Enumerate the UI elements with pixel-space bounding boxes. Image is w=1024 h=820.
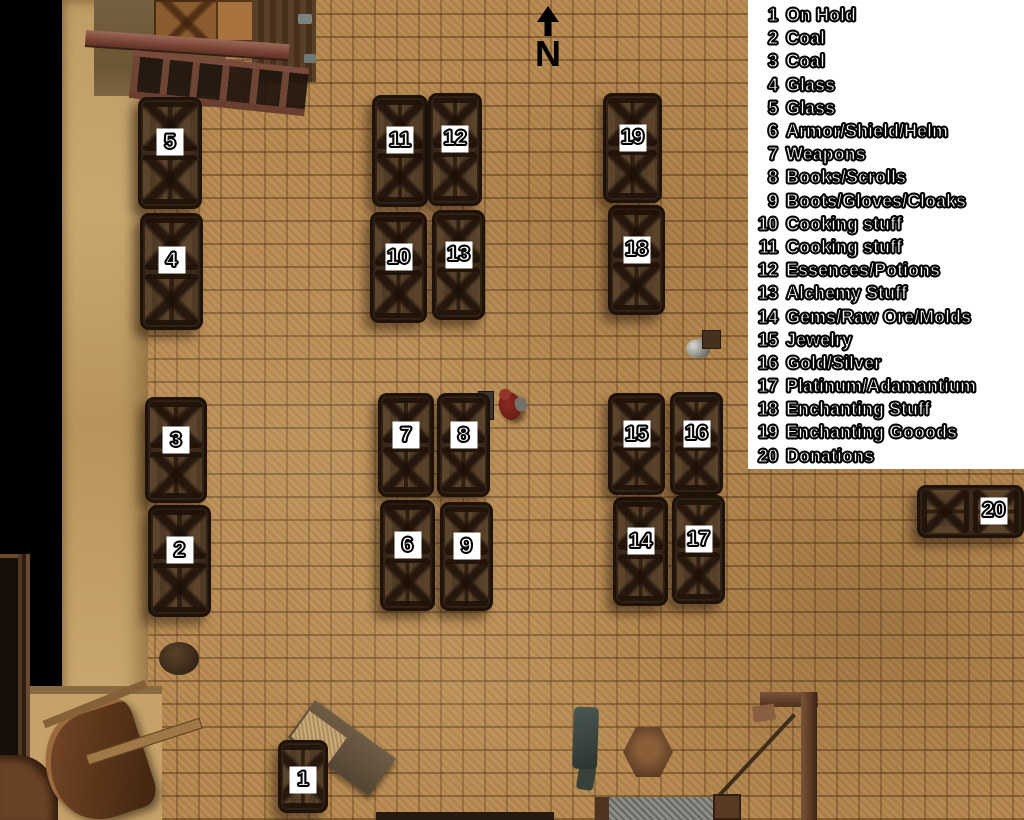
legend-item-label: Cooking stuff bbox=[786, 214, 902, 235]
north-arrow-icon bbox=[535, 6, 561, 36]
chest-number-label: 4 bbox=[158, 247, 185, 274]
chest-number-label: 10 bbox=[385, 244, 412, 271]
chest-number-label: 16 bbox=[683, 420, 710, 447]
chest-number-label: 12 bbox=[442, 125, 469, 152]
legend-row: 13Alchemy Stuff bbox=[748, 282, 1024, 305]
chest-5[interactable]: 5 bbox=[138, 97, 202, 209]
chest-3[interactable]: 3 bbox=[145, 397, 207, 503]
chest-number-label: 14 bbox=[627, 528, 654, 555]
chest-panel bbox=[613, 446, 660, 490]
legend-row: 12Essences/Potions bbox=[748, 259, 1024, 282]
legend-row: 5Glass bbox=[748, 97, 1024, 120]
legend-item-number: 6 bbox=[748, 121, 778, 142]
legend-item-label: Donations bbox=[786, 446, 874, 467]
legend-item-number: 4 bbox=[748, 75, 778, 96]
chest-number-label: 18 bbox=[623, 236, 650, 263]
legend-item-label: Gold/Silver bbox=[786, 353, 881, 374]
chest-1[interactable]: 1 bbox=[278, 740, 328, 813]
balcony-stone bbox=[304, 54, 316, 63]
crane-bracket bbox=[752, 704, 776, 723]
legend-row: 10Cooking stuff bbox=[748, 213, 1024, 236]
chest-panel bbox=[153, 563, 206, 612]
legend-row: 7Weapons bbox=[748, 143, 1024, 166]
chest-18[interactable]: 18 bbox=[608, 205, 665, 315]
chest-number-label: 6 bbox=[394, 532, 421, 559]
plaster-wall bbox=[62, 0, 148, 706]
legend-item-number: 12 bbox=[748, 260, 778, 281]
chest-number-label: 7 bbox=[393, 422, 420, 449]
legend-row: 14Gems/Raw Ore/Molds bbox=[748, 305, 1024, 328]
chest-number-label: 8 bbox=[450, 422, 477, 449]
legend-item-label: Books/Scrolls bbox=[786, 167, 906, 188]
rock-prop bbox=[159, 642, 199, 675]
chest-panel bbox=[433, 152, 477, 202]
chest-number-label: 13 bbox=[445, 241, 472, 268]
legend-item-label: Glass bbox=[786, 98, 835, 119]
chest-number-label: 15 bbox=[623, 421, 650, 448]
legend-item-label: Enchanting Gooods bbox=[786, 422, 957, 443]
chest-13[interactable]: 13 bbox=[432, 210, 485, 320]
legend-item-number: 9 bbox=[748, 191, 778, 212]
chest-10[interactable]: 10 bbox=[370, 212, 427, 323]
chest-11[interactable]: 11 bbox=[372, 95, 428, 207]
legend-row: 6Armor/Shield/Helm bbox=[748, 120, 1024, 143]
legend-row: 1On Hold bbox=[748, 4, 1024, 27]
legend-item-number: 20 bbox=[748, 446, 778, 467]
legend-row: 18Enchanting Stuff bbox=[748, 398, 1024, 421]
legend-row: 8Books/Scrolls bbox=[748, 166, 1024, 189]
legend-item-label: Gems/Raw Ore/Molds bbox=[786, 307, 971, 328]
legend-item-number: 14 bbox=[748, 307, 778, 328]
chest-20[interactable]: 20 bbox=[917, 485, 1024, 538]
legend-item-label: Coal bbox=[786, 28, 825, 49]
legend-item-number: 15 bbox=[748, 330, 778, 351]
legend-row: 4Glass bbox=[748, 74, 1024, 97]
trough-wood-end bbox=[713, 794, 741, 820]
chest-12[interactable]: 12 bbox=[428, 93, 482, 206]
legend-item-label: Enchanting Stuff bbox=[786, 399, 930, 420]
legend-row: 15Jewelry bbox=[748, 329, 1024, 352]
chest-17[interactable]: 17 bbox=[672, 495, 725, 604]
chest-panel bbox=[150, 452, 202, 498]
chest-panel bbox=[145, 274, 198, 326]
chest-number-label: 17 bbox=[685, 526, 712, 553]
legend-item-label: Boots/Gloves/Cloaks bbox=[786, 191, 966, 212]
chest-panel bbox=[613, 262, 660, 310]
chest-8[interactable]: 8 bbox=[437, 393, 490, 497]
map-viewport: 1234567891011121314151617181920 N 1On Ho… bbox=[0, 0, 1024, 820]
chest-panel bbox=[383, 447, 429, 492]
crane-post bbox=[801, 692, 817, 820]
legend-item-number: 19 bbox=[748, 422, 778, 443]
anvil-prop bbox=[572, 707, 599, 770]
legend-row: 2Coal bbox=[748, 27, 1024, 50]
chest-6[interactable]: 6 bbox=[380, 500, 435, 611]
legend-item-number: 11 bbox=[748, 237, 778, 258]
legend-item-number: 16 bbox=[748, 353, 778, 374]
chest-panel bbox=[618, 554, 663, 602]
chest-number-label: 5 bbox=[157, 129, 184, 156]
chest-15[interactable]: 15 bbox=[608, 393, 665, 495]
chest-number-label: 19 bbox=[619, 124, 646, 151]
chest-number-label: 1 bbox=[290, 766, 317, 793]
legend-item-label: Alchemy Stuff bbox=[786, 283, 907, 304]
chest-number-label: 9 bbox=[453, 533, 480, 560]
chest-number-label: 20 bbox=[980, 497, 1007, 524]
small-crate-prop bbox=[702, 330, 721, 349]
chest-19[interactable]: 19 bbox=[603, 93, 662, 203]
chest-number-label: 2 bbox=[166, 537, 193, 564]
legend-item-number: 17 bbox=[748, 376, 778, 397]
chest-panel bbox=[922, 490, 969, 533]
legend-row: 11Cooking stuff bbox=[748, 236, 1024, 259]
legend-item-number: 3 bbox=[748, 51, 778, 72]
chest-panel bbox=[143, 155, 197, 204]
legend-row: 19Enchanting Gooods bbox=[748, 421, 1024, 444]
legend-item-label: Coal bbox=[786, 51, 825, 72]
chest-number-label: 11 bbox=[387, 127, 414, 154]
legend-panel: 1On Hold2Coal3Coal4Glass5Glass6Armor/Shi… bbox=[748, 0, 1024, 469]
legend-item-label: Weapons bbox=[786, 144, 866, 165]
chest-panel bbox=[385, 558, 430, 607]
legend-item-label: On Hold bbox=[786, 5, 856, 26]
chest-14[interactable]: 14 bbox=[613, 497, 668, 606]
legend-row: 20Donations bbox=[748, 445, 1024, 468]
legend-item-number: 10 bbox=[748, 214, 778, 235]
chest-number-label: 3 bbox=[163, 427, 190, 454]
chest-panel bbox=[677, 552, 720, 600]
chest-4[interactable]: 4 bbox=[140, 213, 203, 330]
chest-panel bbox=[608, 150, 657, 198]
legend-item-number: 13 bbox=[748, 283, 778, 304]
chest-panel bbox=[375, 270, 422, 319]
legend-row: 16Gold/Silver bbox=[748, 352, 1024, 375]
stone-trough bbox=[595, 797, 729, 820]
chest-16[interactable]: 16 bbox=[670, 392, 723, 495]
chest-panel bbox=[437, 267, 480, 315]
balcony-stone bbox=[298, 14, 312, 24]
chest-panel bbox=[675, 446, 718, 491]
chest-7[interactable]: 7 bbox=[378, 393, 434, 497]
legend-item-number: 18 bbox=[748, 399, 778, 420]
legend-item-label: Armor/Shield/Helm bbox=[786, 121, 948, 142]
legend-item-label: Jewelry bbox=[786, 330, 852, 351]
legend-item-number: 5 bbox=[748, 98, 778, 119]
legend-item-number: 2 bbox=[748, 28, 778, 49]
compass-north-label: N bbox=[526, 39, 570, 69]
chest-panel bbox=[442, 447, 485, 492]
legend-row: 9Boots/Gloves/Cloaks bbox=[748, 190, 1024, 213]
legend-item-number: 1 bbox=[748, 5, 778, 26]
compass: N bbox=[526, 6, 570, 69]
legend-row: 17Platinum/Adamantium bbox=[748, 375, 1024, 398]
legend-item-number: 8 bbox=[748, 167, 778, 188]
chest-panel bbox=[377, 153, 423, 202]
legend-item-label: Platinum/Adamantium bbox=[786, 376, 976, 397]
legend-row: 3Coal bbox=[748, 50, 1024, 73]
legend-item-number: 7 bbox=[748, 144, 778, 165]
floor-shadow-strip bbox=[376, 812, 554, 820]
chest-panel bbox=[445, 559, 488, 607]
legend-item-label: Essences/Potions bbox=[786, 260, 940, 281]
chest-9[interactable]: 9 bbox=[440, 502, 493, 611]
chest-2[interactable]: 2 bbox=[148, 505, 211, 617]
legend-item-label: Glass bbox=[786, 75, 835, 96]
balcony-structure bbox=[66, 0, 316, 102]
legend-item-label: Cooking stuff bbox=[786, 237, 902, 258]
